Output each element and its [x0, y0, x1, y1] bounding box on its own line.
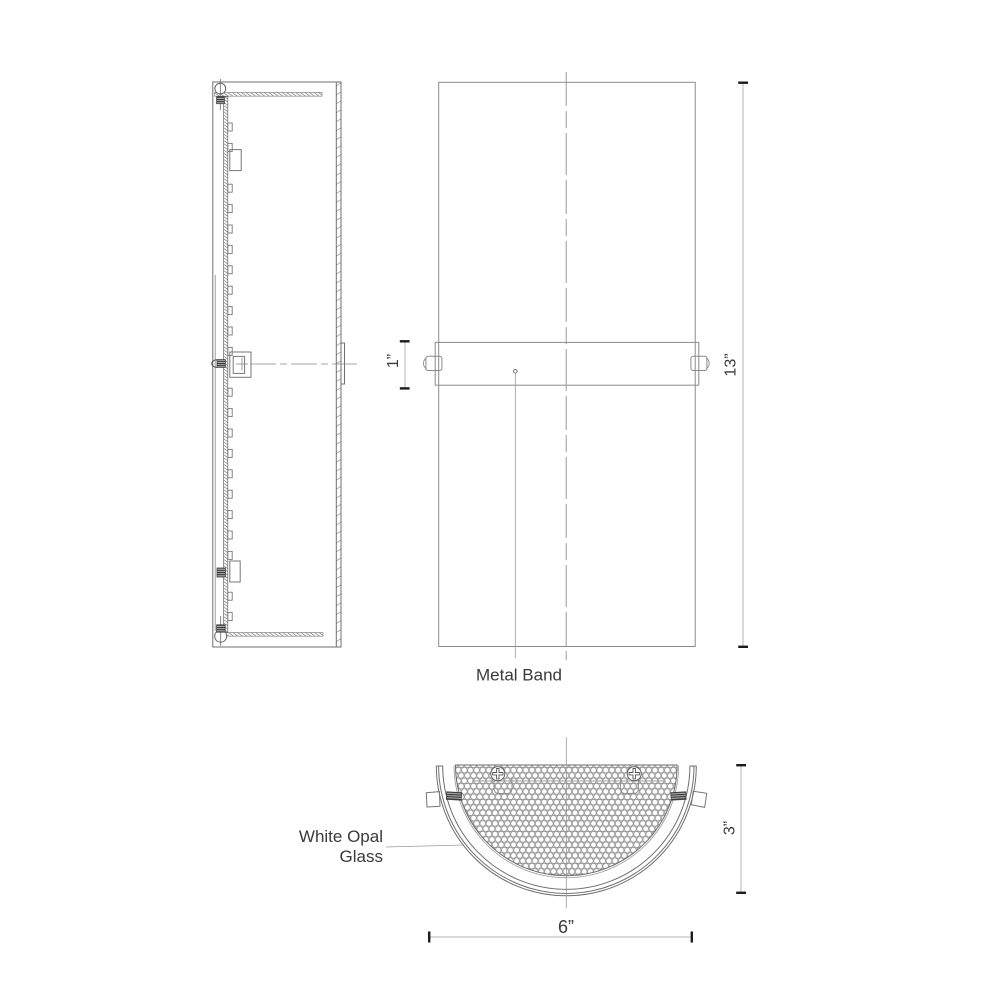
- svg-text:Glass: Glass: [340, 847, 383, 866]
- svg-text:13”: 13”: [723, 353, 740, 376]
- svg-text:White Opal: White Opal: [299, 827, 383, 846]
- svg-text:Metal Band: Metal Band: [476, 666, 562, 685]
- svg-text:3”: 3”: [722, 821, 739, 835]
- svg-text:6”: 6”: [558, 917, 574, 937]
- svg-text:1”: 1”: [385, 354, 402, 368]
